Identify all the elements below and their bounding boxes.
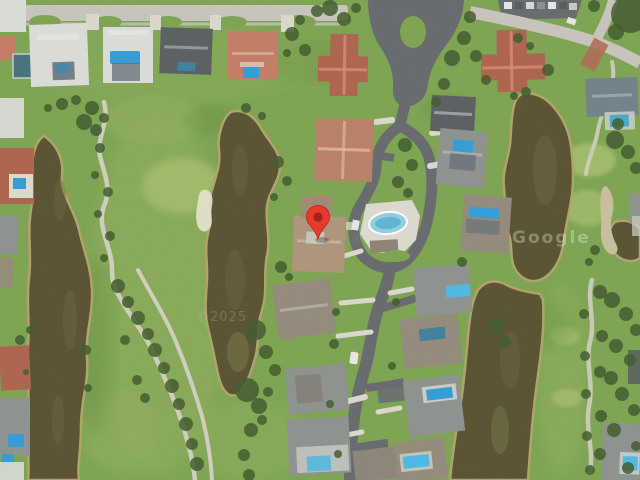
satellite-map[interactable]: Google ©2025 <box>0 0 640 480</box>
google-watermark: Google <box>512 228 591 248</box>
map-canvas: Google ©2025 <box>0 0 640 480</box>
copyright-watermark: ©2025 <box>196 310 247 325</box>
